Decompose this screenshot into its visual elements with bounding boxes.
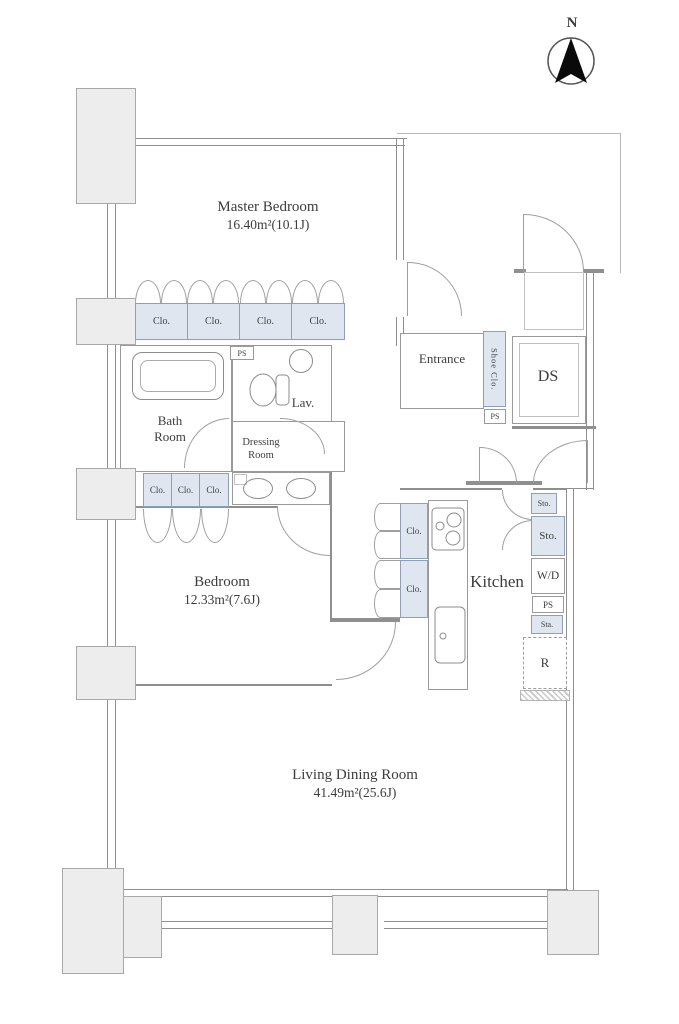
- lavatory-sink-icon: [289, 349, 313, 373]
- folding-door-arc: [187, 280, 213, 303]
- folding-door-arc: [201, 509, 229, 543]
- refrigerator-label: R: [541, 655, 550, 671]
- hall-closet-1-label: Clo.: [150, 485, 165, 495]
- lavatory-label: Lav.: [276, 395, 330, 411]
- pillar-bottom-left-a: [62, 868, 124, 974]
- pillar-left-3: [76, 468, 136, 520]
- bedroom-door-arc: [277, 506, 330, 556]
- ps-box-kitchen: PS: [532, 596, 564, 613]
- corridor-door-arc-left: [480, 447, 517, 483]
- master-closet-1: Clo.: [135, 303, 188, 340]
- storage-small-label: Sto.: [538, 499, 551, 508]
- hall-closet-2-label: Clo.: [178, 485, 193, 495]
- hall-closet-3: Clo.: [199, 473, 229, 507]
- wall-hall-left: [330, 472, 332, 620]
- entrance-name: Entrance: [419, 351, 465, 366]
- living-dining-area: 41.49m²(25.6J): [235, 785, 475, 802]
- entrance-door-arc: [524, 214, 584, 272]
- folding-door-arc: [161, 280, 187, 303]
- wall-ds-bottom: [512, 426, 596, 429]
- ps-bath-label: PS: [238, 349, 247, 358]
- storage-label: Sto.: [539, 530, 556, 542]
- folding-door-arc: [374, 503, 400, 531]
- wall-right-lower-b: [573, 488, 574, 891]
- window-bottom-left-b: [162, 928, 332, 929]
- folding-door-arc: [266, 280, 292, 303]
- window-bottom-right-b: [384, 928, 547, 929]
- wall-kitchen-top-right: [533, 488, 567, 490]
- master-closet-3-label: Clo.: [257, 316, 274, 327]
- kitchen-closet-2-label: Clo.: [406, 584, 421, 594]
- pillar-left-4: [76, 646, 136, 700]
- pillar-bottom-left-b: [123, 896, 162, 958]
- kitchen-label: Kitchen: [442, 571, 552, 592]
- master-closet-1-label: Clo.: [153, 316, 170, 327]
- pillar-left-2: [76, 298, 136, 345]
- floor-plan: PS PS Sto. Sto. W/D PS Sta. R Clo. Clo. …: [0, 0, 679, 1024]
- stove-icon: [431, 507, 465, 551]
- wall-kitchen-top-left: [400, 488, 502, 490]
- ps-box-bath: PS: [230, 346, 254, 360]
- bath-room-line2: Room: [124, 429, 216, 445]
- bedroom-area: 12.33m²(7.6J): [122, 592, 322, 609]
- living-dining-name: Living Dining Room: [235, 766, 475, 785]
- storage-small-box: Sto.: [531, 493, 557, 514]
- hall-closet-1: Clo.: [143, 473, 172, 507]
- bedroom-label: Bedroom 12.33m²(7.6J): [122, 573, 322, 609]
- vanity-basin-right: [286, 478, 316, 499]
- kitchen-sink-icon: [434, 606, 466, 664]
- wall-right-faint: [620, 133, 621, 273]
- pillar-top-left: [76, 88, 136, 204]
- wall-bottom-a: [108, 889, 568, 890]
- master-bedroom-label: Master Bedroom 16.40m²(10.1J): [148, 198, 388, 234]
- compass-north-label: N: [556, 14, 588, 33]
- kitchen-closet-2: Clo.: [400, 560, 428, 618]
- hall-living-door-arc: [336, 622, 396, 680]
- station-box: Sta.: [531, 615, 563, 634]
- master-closet-2: Clo.: [187, 303, 240, 340]
- pillar-bottom-right: [547, 890, 599, 955]
- living-dining-label: Living Dining Room 41.49m²(25.6J): [235, 766, 475, 802]
- refrigerator-space: R: [523, 637, 567, 689]
- low-wall-hatch: [520, 690, 570, 701]
- master-bedroom-door-arc: [408, 262, 462, 316]
- folding-door-arc: [292, 280, 318, 303]
- master-closet-3: Clo.: [239, 303, 292, 340]
- storage-box: Sto.: [531, 516, 565, 556]
- hall-closet-2: Clo.: [171, 473, 200, 507]
- compass-icon: [546, 36, 596, 86]
- entrance-label: Entrance: [402, 351, 482, 367]
- dressing-line1: Dressing: [222, 436, 300, 449]
- folding-door-arc: [172, 509, 201, 543]
- shoe-closet: Shoe Clo.: [483, 331, 506, 407]
- folding-door-arc: [135, 280, 161, 303]
- master-bedroom-name: Master Bedroom: [148, 198, 388, 217]
- wall-bedroom-bottom: [108, 684, 332, 686]
- corridor-door-arc-right: [533, 440, 588, 483]
- window-bottom-right-a: [384, 921, 547, 922]
- entrance-outline: [400, 333, 484, 409]
- dressing-room-label: Dressing Room: [222, 436, 300, 462]
- master-closet-4-label: Clo.: [310, 316, 327, 327]
- vanity-basin-left: [243, 478, 273, 499]
- ps-box-entrance: PS: [484, 409, 506, 424]
- bedroom-name: Bedroom: [122, 573, 322, 592]
- hall-closet-3-label: Clo.: [206, 485, 221, 495]
- kitchen-door-arc-lower: [502, 520, 533, 550]
- wall-top-inner: [108, 145, 405, 146]
- wall-topright-faint: [397, 133, 621, 134]
- wall-right-upper-b: [593, 271, 594, 490]
- bath-room-line1: Bath: [124, 413, 216, 429]
- station-label: Sta.: [541, 620, 553, 629]
- entrance-porch: [524, 272, 584, 330]
- wall-right-jog: [566, 488, 594, 489]
- bathtub: [132, 352, 224, 400]
- bath-room-label: Bath Room: [124, 413, 216, 446]
- dressing-line2: Room: [222, 449, 300, 462]
- ps-entrance-label: PS: [491, 412, 500, 421]
- door-gap-master: [394, 260, 406, 317]
- lavatory-name: Lav.: [292, 395, 315, 410]
- ds-name: DS: [538, 368, 558, 385]
- folding-door-arc: [240, 280, 266, 303]
- kitchen-closet-1-label: Clo.: [406, 526, 421, 536]
- window-bottom-left-a: [162, 921, 332, 922]
- ds-label: DS: [514, 367, 582, 387]
- kitchen-closet-1: Clo.: [400, 503, 428, 559]
- folding-door-arc: [213, 280, 239, 303]
- folding-door-arc: [318, 280, 344, 303]
- wall-bedroom-top-b: [232, 506, 278, 508]
- shoe-closet-label: Shoe Clo.: [490, 348, 500, 391]
- kitchen-name: Kitchen: [470, 572, 524, 591]
- kitchen-door-arc-upper: [502, 490, 533, 520]
- wall-top-outer: [108, 138, 407, 139]
- folding-door-arc: [374, 531, 400, 559]
- folding-door-arc: [374, 560, 400, 589]
- compass-n-text: N: [567, 15, 578, 31]
- folding-door-arc: [143, 509, 172, 543]
- pillar-bottom-mid: [332, 895, 378, 955]
- master-bedroom-area: 16.40m²(10.1J): [148, 217, 388, 234]
- folding-door-arc: [374, 589, 400, 618]
- ps-kitchen-label: PS: [543, 600, 553, 610]
- master-closet-4: Clo.: [291, 303, 345, 340]
- master-closet-2-label: Clo.: [205, 316, 222, 327]
